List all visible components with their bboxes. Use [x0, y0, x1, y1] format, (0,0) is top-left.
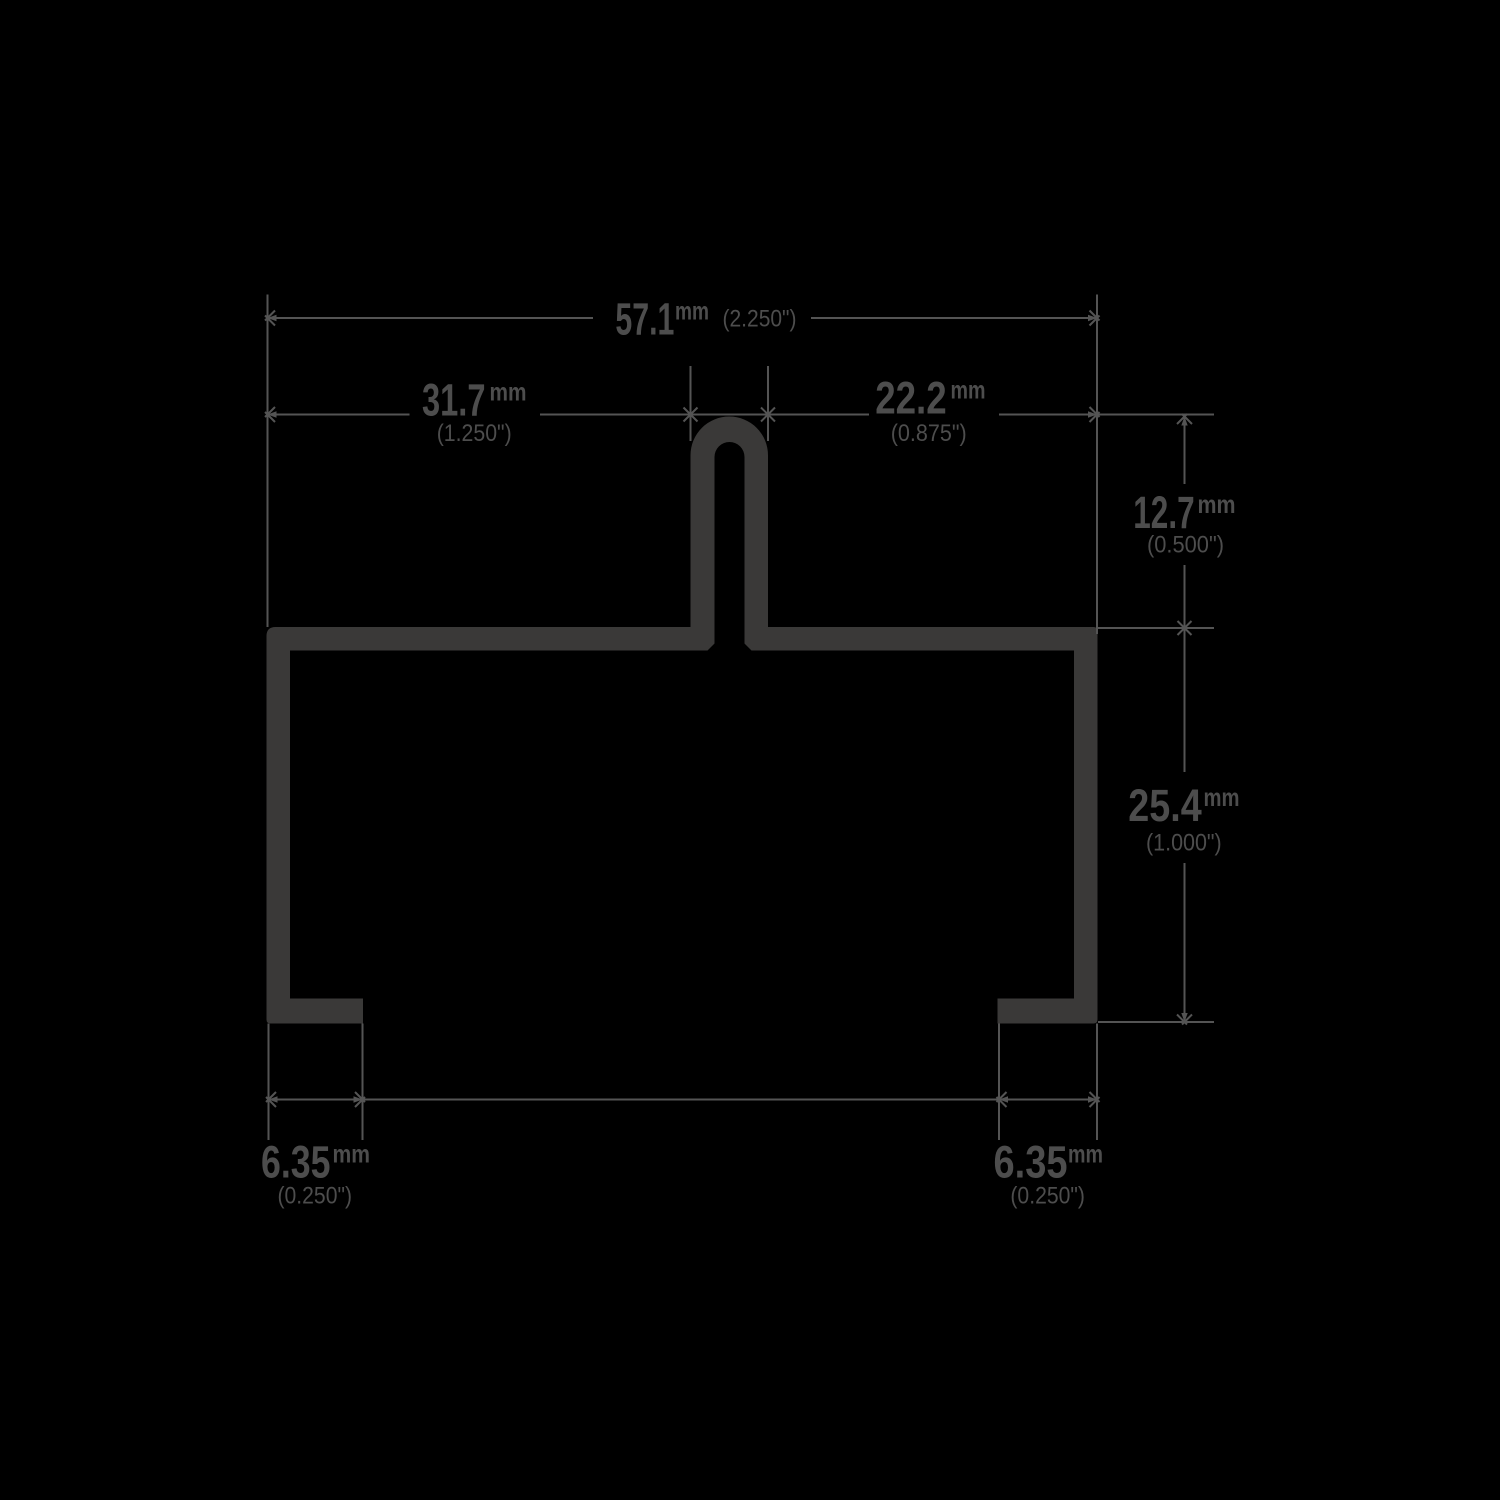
- svg-text:mm: mm: [1068, 1141, 1103, 1169]
- svg-text:mm: mm: [675, 297, 709, 325]
- svg-text:(0.250"): (0.250"): [1010, 1182, 1085, 1209]
- svg-text:(0.250"): (0.250"): [278, 1182, 353, 1209]
- svg-text:(0.875"): (0.875"): [891, 420, 967, 447]
- svg-text:mm: mm: [490, 379, 527, 407]
- svg-text:mm: mm: [1198, 491, 1236, 519]
- svg-text:25.4: 25.4: [1128, 780, 1201, 831]
- svg-text:31.7: 31.7: [422, 375, 486, 426]
- svg-text:mm: mm: [1204, 784, 1240, 812]
- svg-text:6.35: 6.35: [261, 1137, 331, 1188]
- svg-text:(0.500"): (0.500"): [1147, 532, 1224, 559]
- svg-text:6.35: 6.35: [994, 1137, 1068, 1188]
- svg-text:mm: mm: [951, 377, 986, 405]
- svg-text:22.2: 22.2: [875, 373, 947, 424]
- svg-text:57.1: 57.1: [615, 293, 674, 344]
- svg-text:(2.250"): (2.250"): [723, 306, 797, 333]
- svg-text:mm: mm: [333, 1141, 371, 1169]
- svg-text:(1.000"): (1.000"): [1146, 830, 1222, 857]
- svg-text:(1.250"): (1.250"): [437, 420, 512, 447]
- svg-text:12.7: 12.7: [1133, 487, 1194, 538]
